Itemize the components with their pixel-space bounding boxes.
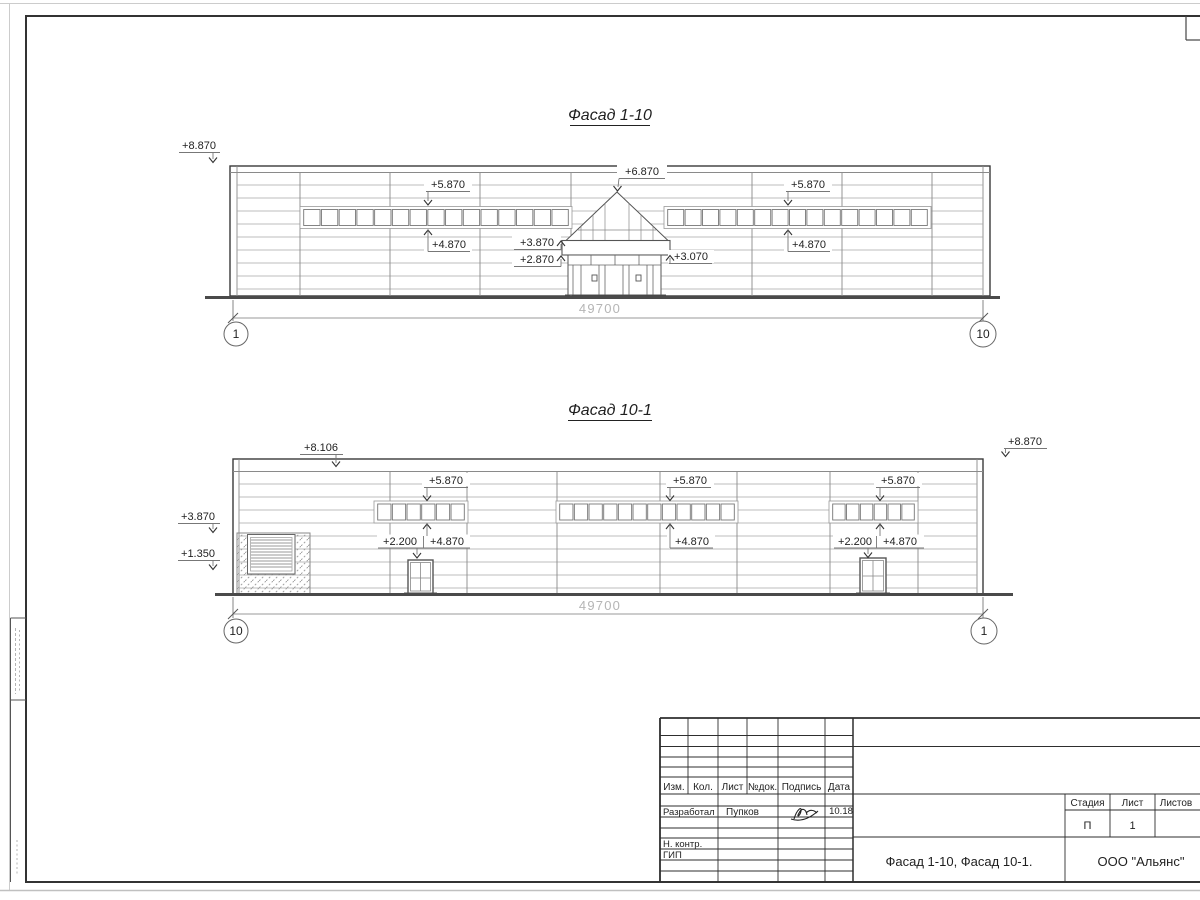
dimension-49700-f1: 49700 — [579, 301, 621, 316]
tb-sheet-number: 1 — [1129, 820, 1135, 832]
tb-sheet-label: Лист — [1122, 798, 1144, 809]
axis-bubble-1-f1: 1 — [233, 327, 240, 341]
mark-band-b-bottom: +4.870 — [675, 536, 709, 548]
tb-col-ndok: №док. — [748, 782, 777, 793]
mark-door-a: +2.200 — [383, 536, 417, 548]
mark-entrance-peak: +6.870 — [625, 166, 659, 178]
tb-stage-value: П — [1084, 820, 1092, 832]
mark-band-right-bottom: +4.870 — [792, 239, 826, 251]
mark-band-b-top: +5.870 — [673, 475, 707, 487]
mark-band-a-top: +5.870 — [429, 475, 463, 487]
axis-bubble-10-f1: 10 — [976, 327, 990, 341]
title-block: Изм. Кол. Лист №док. Подпись Дата Разраб… — [660, 718, 1200, 882]
mark-canopy-right: +3.070 — [674, 251, 708, 263]
mark-roof-left: +8.870 — [182, 140, 216, 152]
mark-band-a-bottom: +4.870 — [430, 536, 464, 548]
tb-drawing-title: Фасад 1-10, Фасад 10-1. — [886, 854, 1033, 869]
tb-stage-label: Стадия — [1070, 798, 1104, 809]
drawing-sheet: Фасад 1-10 +8.870 +5.870 +4.870 +6.870 +… — [0, 0, 1200, 900]
mark-door-c: +2.200 — [838, 536, 872, 548]
facade-1-10-elevation: Фасад 1-10 +8.870 +5.870 +4.870 +6.870 +… — [179, 107, 1000, 347]
tb-gip-role: ГИП — [663, 850, 682, 861]
tb-developer-role: Разработал — [663, 807, 715, 818]
mark-roof-right: +8.870 — [1008, 436, 1042, 448]
tb-col-kol: Кол. — [693, 782, 713, 793]
tb-normcontrol-role: Н. контр. — [663, 839, 702, 850]
mark-band-c-bottom: +4.870 — [883, 536, 917, 548]
axis-bubble-10-f2: 10 — [229, 624, 243, 638]
mark-band-right-top: +5.870 — [791, 179, 825, 191]
mark-canopy-bottom: +2.870 — [520, 254, 554, 266]
dimension-49700-f2: 49700 — [579, 598, 621, 613]
mark-band-left-bottom: +4.870 — [432, 239, 466, 251]
mark-canopy-top: +3.870 — [520, 237, 554, 249]
mark-wall-left-lower: +1.350 — [181, 548, 215, 560]
mark-band-c-top: +5.870 — [881, 475, 915, 487]
tb-col-data: Дата — [828, 782, 851, 793]
tb-signature-date: 10.18 — [829, 806, 853, 817]
tb-company: ООО "Альянс" — [1098, 854, 1185, 869]
facade-10-1-title: Фасад 10-1 — [568, 402, 652, 419]
tb-col-izm: Изм. — [663, 782, 684, 793]
mark-wall-left-upper: +3.870 — [181, 511, 215, 523]
facade-10-1-elevation: Фасад 10-1 +8.106 +8.870 +3.870 +1.350 +… — [178, 402, 1047, 644]
mark-parapet-left: +8.106 — [304, 442, 338, 454]
tb-developer-name: Пупков — [726, 807, 759, 818]
tb-sheets-label: Листов — [1160, 798, 1193, 809]
tb-col-podpis: Подпись — [782, 782, 822, 793]
tb-col-list: Лист — [722, 782, 744, 793]
mark-band-left-top: +5.870 — [431, 179, 465, 191]
axis-bubble-1-f2: 1 — [981, 624, 988, 638]
facade-1-10-title: Фасад 1-10 — [568, 107, 652, 124]
